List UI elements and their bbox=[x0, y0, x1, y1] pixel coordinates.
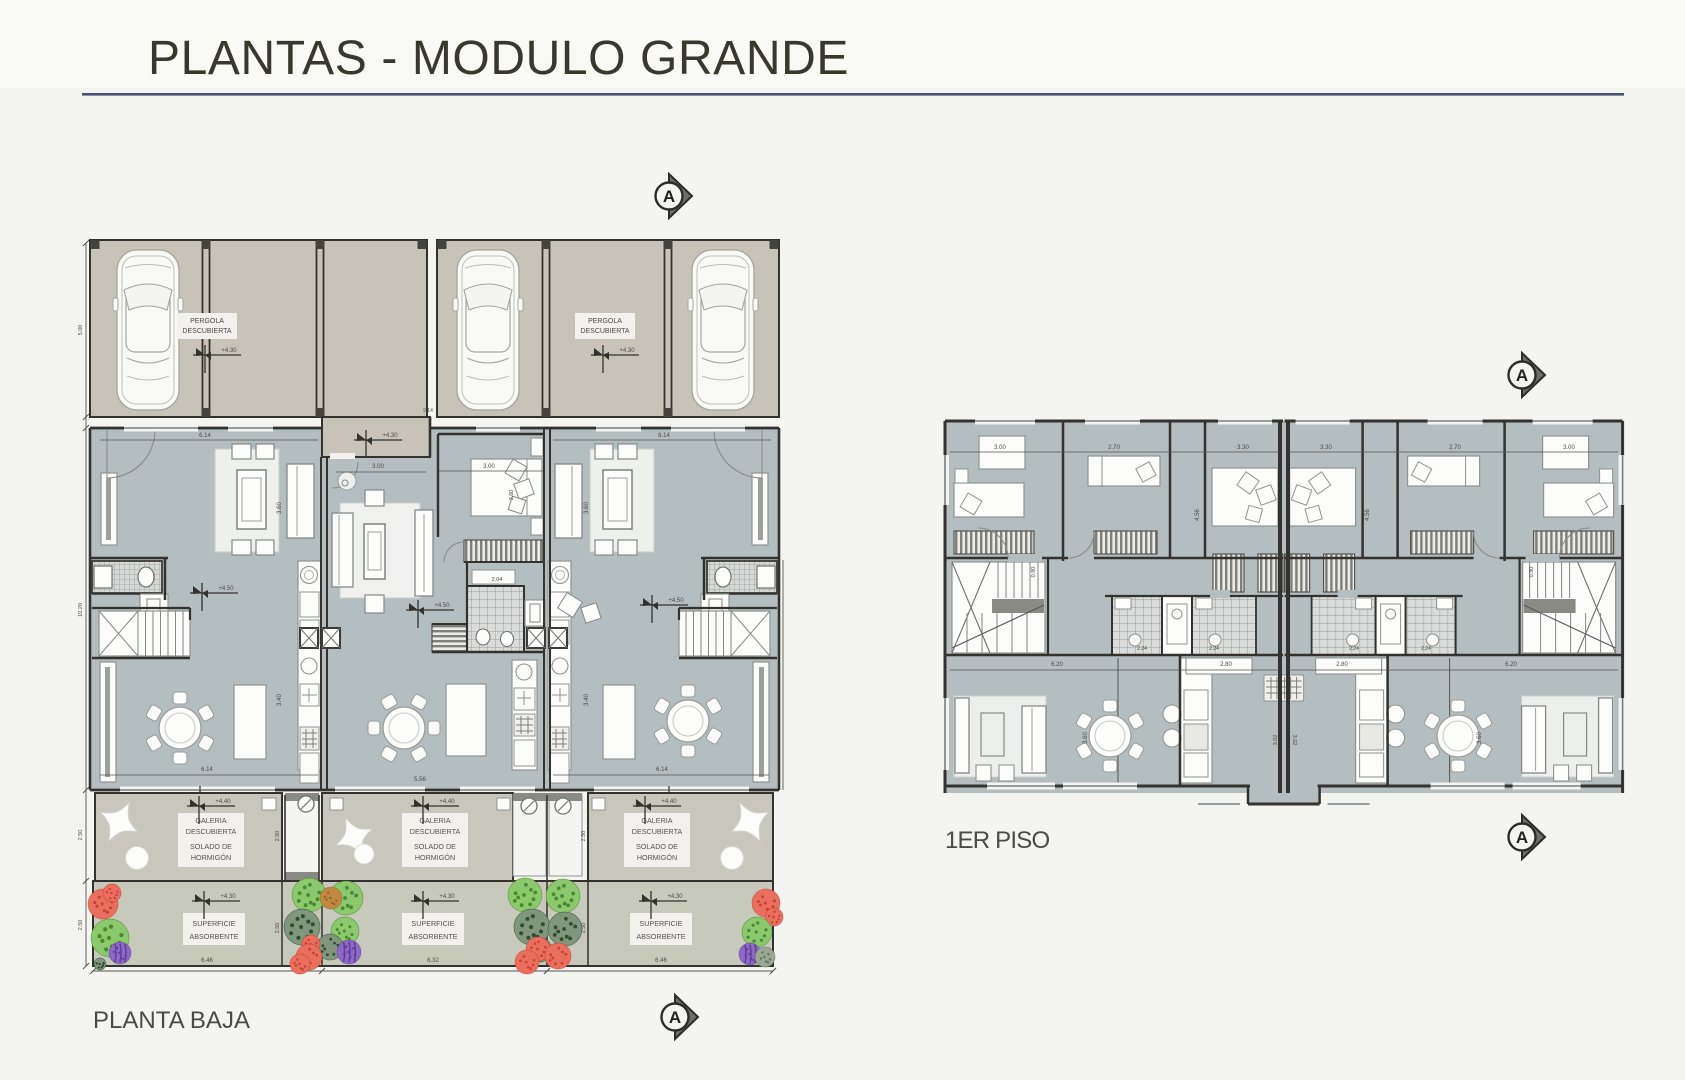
svg-text:6.46: 6.46 bbox=[201, 958, 213, 964]
svg-text:3.30: 3.30 bbox=[1237, 445, 1249, 451]
svg-text:2.70: 2.70 bbox=[1108, 445, 1120, 451]
svg-text:0.90: 0.90 bbox=[1529, 567, 1535, 578]
svg-text:6.14: 6.14 bbox=[656, 767, 668, 773]
svg-text:6.14: 6.14 bbox=[658, 433, 670, 439]
svg-text:2.80: 2.80 bbox=[1220, 662, 1232, 668]
svg-text:2.50: 2.50 bbox=[581, 831, 587, 842]
svg-text:6.46: 6.46 bbox=[655, 958, 667, 964]
svg-text:ABSORBENTE: ABSORBENTE bbox=[408, 932, 457, 941]
svg-text:2.50: 2.50 bbox=[275, 923, 281, 934]
svg-text:+4.30: +4.30 bbox=[220, 894, 236, 900]
svg-text:PLANTA BAJA: PLANTA BAJA bbox=[93, 1007, 250, 1034]
svg-text:SUPERFICIE: SUPERFICIE bbox=[411, 919, 454, 928]
svg-text:+4.40: +4.40 bbox=[215, 799, 231, 805]
svg-text:1ER PISO: 1ER PISO bbox=[945, 827, 1049, 854]
svg-text:+4.50: +4.50 bbox=[218, 586, 234, 592]
svg-text:4.56: 4.56 bbox=[1195, 509, 1201, 521]
svg-text:DESCUBIERTA: DESCUBIERTA bbox=[182, 328, 231, 335]
svg-text:2.24: 2.24 bbox=[1137, 646, 1147, 652]
svg-text:3.60: 3.60 bbox=[584, 502, 590, 514]
svg-text:0.90: 0.90 bbox=[1031, 567, 1037, 578]
svg-text:2.50: 2.50 bbox=[275, 831, 281, 842]
svg-text:+4.30: +4.30 bbox=[667, 894, 683, 900]
svg-text:3.00: 3.00 bbox=[1563, 445, 1575, 451]
svg-text:2.04: 2.04 bbox=[492, 577, 503, 583]
svg-text:6.14: 6.14 bbox=[201, 767, 213, 773]
svg-text:+4.30: +4.30 bbox=[221, 348, 237, 354]
svg-text:A: A bbox=[669, 1008, 681, 1027]
svg-text:A: A bbox=[1516, 366, 1528, 385]
svg-text:SOLADO DE: SOLADO DE bbox=[414, 842, 456, 851]
svg-text:DESCUBIERTA: DESCUBIERTA bbox=[580, 328, 629, 335]
svg-text:PERGOLA: PERGOLA bbox=[588, 318, 622, 325]
svg-text:A: A bbox=[663, 187, 675, 206]
svg-text:A: A bbox=[1516, 828, 1528, 847]
svg-text:+4.30: +4.30 bbox=[439, 894, 455, 900]
svg-text:6.14: 6.14 bbox=[199, 433, 211, 439]
svg-text:HORMIGÓN: HORMIGÓN bbox=[637, 853, 677, 862]
svg-text:GALERIA: GALERIA bbox=[195, 816, 226, 825]
svg-text:PLANTAS - MODULO GRANDE: PLANTAS - MODULO GRANDE bbox=[148, 32, 849, 85]
svg-text:6.32: 6.32 bbox=[427, 958, 439, 964]
svg-text:DESCUBIERTA: DESCUBIERTA bbox=[410, 827, 461, 836]
svg-text:2.50: 2.50 bbox=[78, 830, 84, 841]
svg-text:3.60: 3.60 bbox=[277, 502, 283, 514]
svg-text:+4.50: +4.50 bbox=[668, 598, 684, 604]
svg-text:GALERIA: GALERIA bbox=[641, 816, 672, 825]
svg-text:DESCUBIERTA: DESCUBIERTA bbox=[632, 827, 683, 836]
svg-text:SUPERFICIE: SUPERFICIE bbox=[639, 919, 682, 928]
svg-text:9.14: 9.14 bbox=[423, 408, 433, 414]
svg-text:6.20: 6.20 bbox=[1505, 662, 1517, 668]
svg-text:HORMIGÓN: HORMIGÓN bbox=[415, 853, 455, 862]
svg-text:3.40: 3.40 bbox=[584, 694, 590, 706]
svg-text:6.20: 6.20 bbox=[1051, 662, 1063, 668]
svg-text:SUPERFICIE: SUPERFICIE bbox=[192, 919, 235, 928]
svg-text:+4.40: +4.40 bbox=[439, 799, 455, 805]
svg-text:3.60: 3.60 bbox=[1083, 732, 1089, 744]
svg-text:3.60: 3.60 bbox=[509, 490, 515, 501]
svg-text:2.24: 2.24 bbox=[1421, 646, 1431, 652]
svg-text:10.20: 10.20 bbox=[78, 603, 84, 617]
svg-text:+4.50: +4.50 bbox=[434, 603, 450, 609]
svg-text:SOLADO DE: SOLADO DE bbox=[190, 842, 232, 851]
svg-text:SOLADO DE: SOLADO DE bbox=[636, 842, 678, 851]
svg-text:+4.30: +4.30 bbox=[382, 433, 398, 439]
svg-text:ABSORBENTE: ABSORBENTE bbox=[189, 932, 238, 941]
svg-text:3.40: 3.40 bbox=[277, 694, 283, 706]
svg-text:2.80: 2.80 bbox=[1336, 662, 1348, 668]
svg-text:5.56: 5.56 bbox=[414, 777, 426, 783]
svg-text:PERGOLA: PERGOLA bbox=[190, 318, 224, 325]
svg-text:GALERIA: GALERIA bbox=[419, 816, 450, 825]
svg-text:3.00: 3.00 bbox=[994, 445, 1006, 451]
svg-text:+4.40: +4.40 bbox=[661, 799, 677, 805]
svg-text:2.50: 2.50 bbox=[78, 920, 84, 931]
svg-text:5.00: 5.00 bbox=[78, 325, 84, 336]
svg-text:2.70: 2.70 bbox=[1449, 445, 1461, 451]
svg-text:2.24: 2.24 bbox=[1209, 646, 1219, 652]
svg-text:2.24: 2.24 bbox=[1349, 646, 1359, 652]
svg-text:3.00: 3.00 bbox=[483, 464, 495, 470]
svg-text:3.30: 3.30 bbox=[1320, 445, 1332, 451]
svg-text:3.60: 3.60 bbox=[1477, 732, 1483, 744]
svg-text:3.02: 3.02 bbox=[1273, 735, 1279, 746]
svg-text:HORMIGÓN: HORMIGÓN bbox=[191, 853, 231, 862]
svg-text:3.02: 3.02 bbox=[1291, 735, 1297, 746]
svg-text:DESCUBIERTA: DESCUBIERTA bbox=[186, 827, 237, 836]
svg-text:3.00: 3.00 bbox=[372, 464, 384, 470]
svg-text:ABSORBENTE: ABSORBENTE bbox=[636, 932, 685, 941]
svg-text:+4.30: +4.30 bbox=[619, 348, 635, 354]
svg-text:4.56: 4.56 bbox=[1365, 509, 1371, 521]
